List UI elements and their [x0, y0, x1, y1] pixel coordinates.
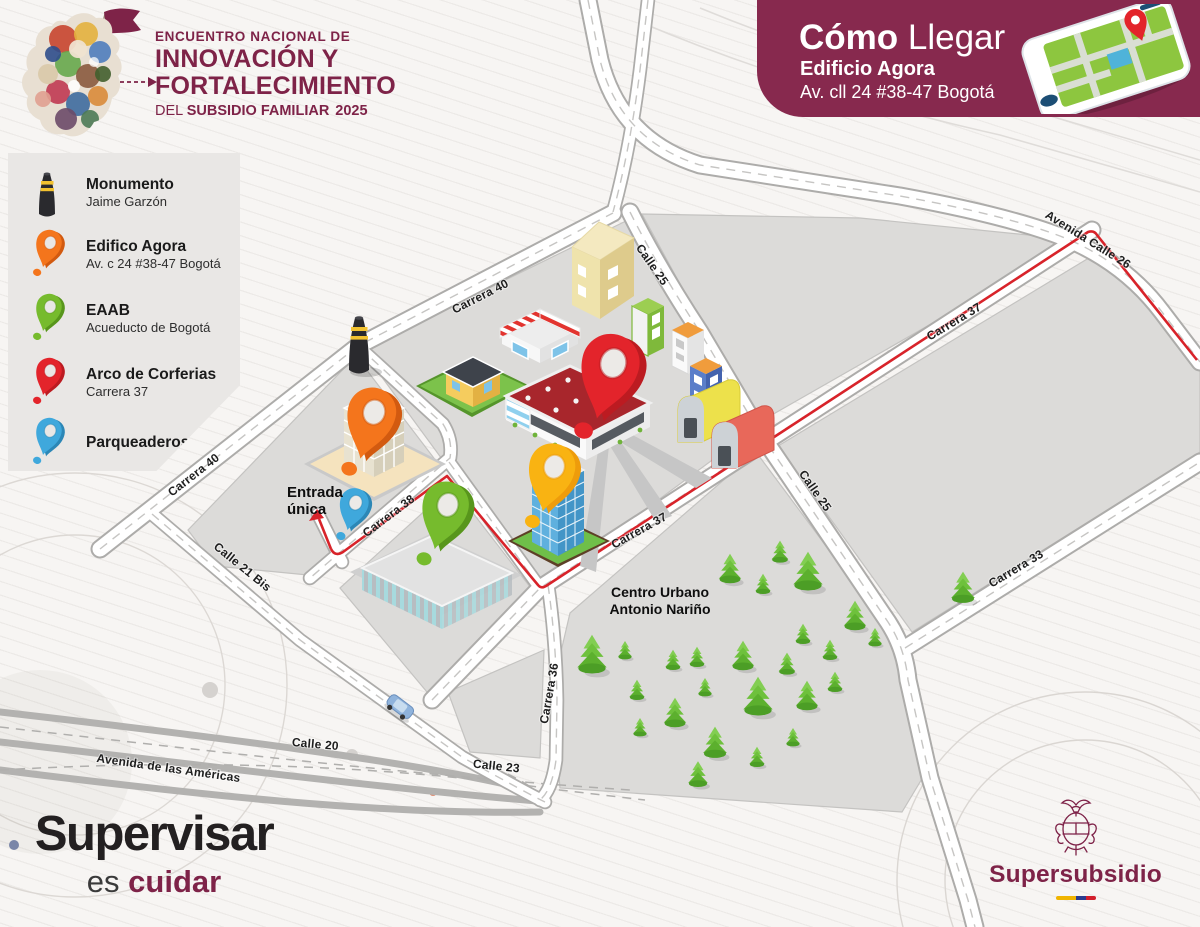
banner-address: Av. cll 24 #38-47 Bogotá: [800, 82, 994, 103]
entrada-label: Entrada: [287, 484, 344, 501]
event-title-line3: FORTALECIMIENTO: [155, 73, 435, 100]
event-title-line4: DEL SUBSIDIO FAMILIAR2025: [155, 103, 435, 119]
como-llegar-banner: Cómo Llegar Edificio Agora Av. cll 24 #3…: [757, 0, 1200, 117]
colombia-flag-bar: [1056, 896, 1096, 900]
people-collage: [8, 4, 164, 149]
brand-name: Supersubsidio: [973, 861, 1178, 889]
legend-item-corferias: Arco de Corferias Carrera 37: [8, 357, 240, 409]
slogan-line2: es cuidar: [24, 864, 284, 900]
pin-blue-icon: [8, 414, 86, 472]
event-title-line1: ENCUENTRO NACIONAL DE: [155, 29, 435, 44]
street-label: Carrera 40: [165, 450, 222, 499]
pin-orange-icon: [8, 226, 86, 284]
slogan-line1: Supervisar: [24, 806, 284, 862]
event-title-line2: INNOVACIÓN Y: [155, 46, 435, 73]
legend-item-title: Parqueaderos: [86, 434, 189, 452]
legend-item-subtitle: Acueducto de Bogotá: [86, 320, 210, 336]
legend-item-title: Arco de Corferias: [86, 366, 216, 384]
legend-item-subtitle: Av. c 24 #38-47 Bogotá: [86, 256, 221, 272]
event-title: ENCUENTRO NACIONAL DE INNOVACIÓN Y FORTA…: [155, 29, 435, 119]
slogan: Supervisar es cuidar: [24, 806, 284, 900]
coat-of-arms-icon: [1045, 795, 1107, 859]
banner-title: Cómo Llegar: [799, 18, 1005, 58]
event-year: 2025: [335, 103, 367, 119]
legend-item-subtitle: Carrera 37: [86, 384, 216, 400]
pin-green-icon: [8, 290, 86, 348]
phone-map-icon: [1016, 4, 1196, 114]
poster: Carrera 40 Carrera 40 Calle 25 Avenida C…: [0, 0, 1200, 927]
city-map: Carrera 40 Carrera 40 Calle 25 Avenida C…: [0, 0, 1200, 927]
pin-red-icon: [8, 354, 86, 412]
centro-urbano-label: Antonio Nariño: [609, 601, 710, 617]
legend-item-monumento: Monumento Jaime Garzón: [8, 167, 240, 219]
entrada-label: única: [287, 501, 327, 518]
centro-urbano-label: Centro Urbano: [611, 584, 709, 600]
legend-item-subtitle: Jaime Garzón: [86, 194, 174, 210]
legend-item-eaab: EAAB Acueducto de Bogotá: [8, 293, 240, 345]
legend-item-title: Edifico Agora: [86, 238, 221, 256]
legend-item-agora: Edifico Agora Av. c 24 #38-47 Bogotá: [8, 229, 240, 281]
supersubsidio-brand: Supersubsidio: [973, 795, 1178, 900]
monument-icon: [8, 168, 86, 218]
legend-item-title: Monumento: [86, 176, 174, 194]
legend-item-title: EAAB: [86, 302, 210, 320]
banner-subtitle: Edificio Agora: [800, 58, 935, 81]
city-blocks: [188, 214, 1200, 812]
